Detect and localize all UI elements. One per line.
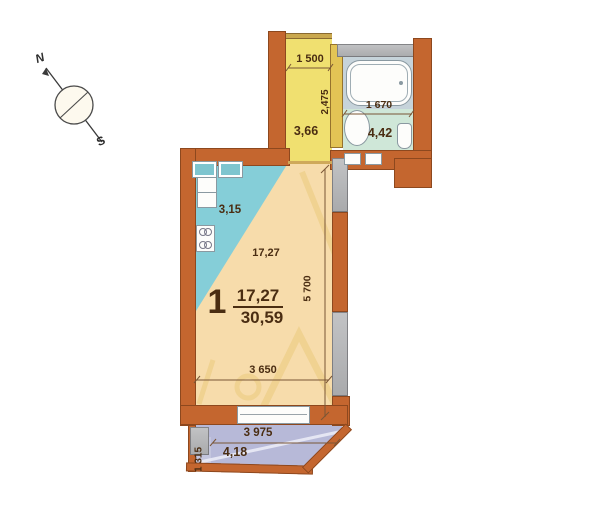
floor-plan: N S 1 500 2,475 3,66 1 670 4,42 3,15 17,… bbox=[0, 0, 600, 523]
hallway-depth-dim: 2,475 bbox=[321, 79, 333, 125]
bathroom-width-dim: 1 670 bbox=[352, 100, 406, 111]
wall-room-right-concrete-top bbox=[332, 158, 348, 212]
wall-room-right-brick bbox=[332, 212, 348, 312]
room-area-inline-label: 17,27 bbox=[243, 248, 289, 260]
bathroom-vent-1 bbox=[344, 153, 361, 165]
balcony-window bbox=[237, 406, 310, 424]
wall-room-left bbox=[180, 148, 196, 426]
wall-bath-corner bbox=[394, 158, 432, 188]
stove-burner bbox=[204, 241, 212, 249]
room-number: 1 bbox=[205, 285, 229, 321]
room-width-dim: 3 650 bbox=[233, 365, 293, 377]
room-total-area: 30,59 bbox=[234, 309, 290, 327]
balcony-area-label: 4,18 bbox=[212, 446, 258, 459]
compass-north-label: N bbox=[31, 50, 48, 67]
balcony-depth-dim: 1 315 bbox=[195, 440, 208, 480]
hall-room-threshold bbox=[288, 161, 332, 164]
kitchen-counter-2 bbox=[219, 162, 242, 177]
entrance-door bbox=[286, 33, 332, 39]
stove bbox=[196, 225, 215, 252]
wall-bath-right bbox=[413, 38, 432, 160]
room-living-area: 17,27 bbox=[233, 287, 283, 308]
kitchen-area-label: 3,15 bbox=[210, 204, 250, 216]
hallway-width-dim: 1 500 bbox=[289, 54, 331, 66]
stove-burner bbox=[204, 228, 212, 236]
bathroom-vent-2 bbox=[365, 153, 382, 165]
wall-bath-top bbox=[337, 44, 421, 57]
compass-south-label: S bbox=[92, 133, 110, 150]
room-length-dim: 5 700 bbox=[303, 265, 316, 313]
balcony-window-glass-line bbox=[240, 414, 307, 415]
bathroom-area-label: 4,42 bbox=[358, 127, 402, 140]
wall-room-right-concrete-bottom bbox=[332, 312, 348, 396]
bathtub-drain bbox=[399, 81, 403, 85]
kitchen-counter-1 bbox=[193, 162, 216, 177]
hallway-area-label: 3,66 bbox=[284, 125, 328, 138]
wall-hall-left bbox=[268, 31, 286, 161]
fridge-divider bbox=[198, 192, 216, 193]
balcony-width-dim: 3 975 bbox=[226, 427, 290, 439]
